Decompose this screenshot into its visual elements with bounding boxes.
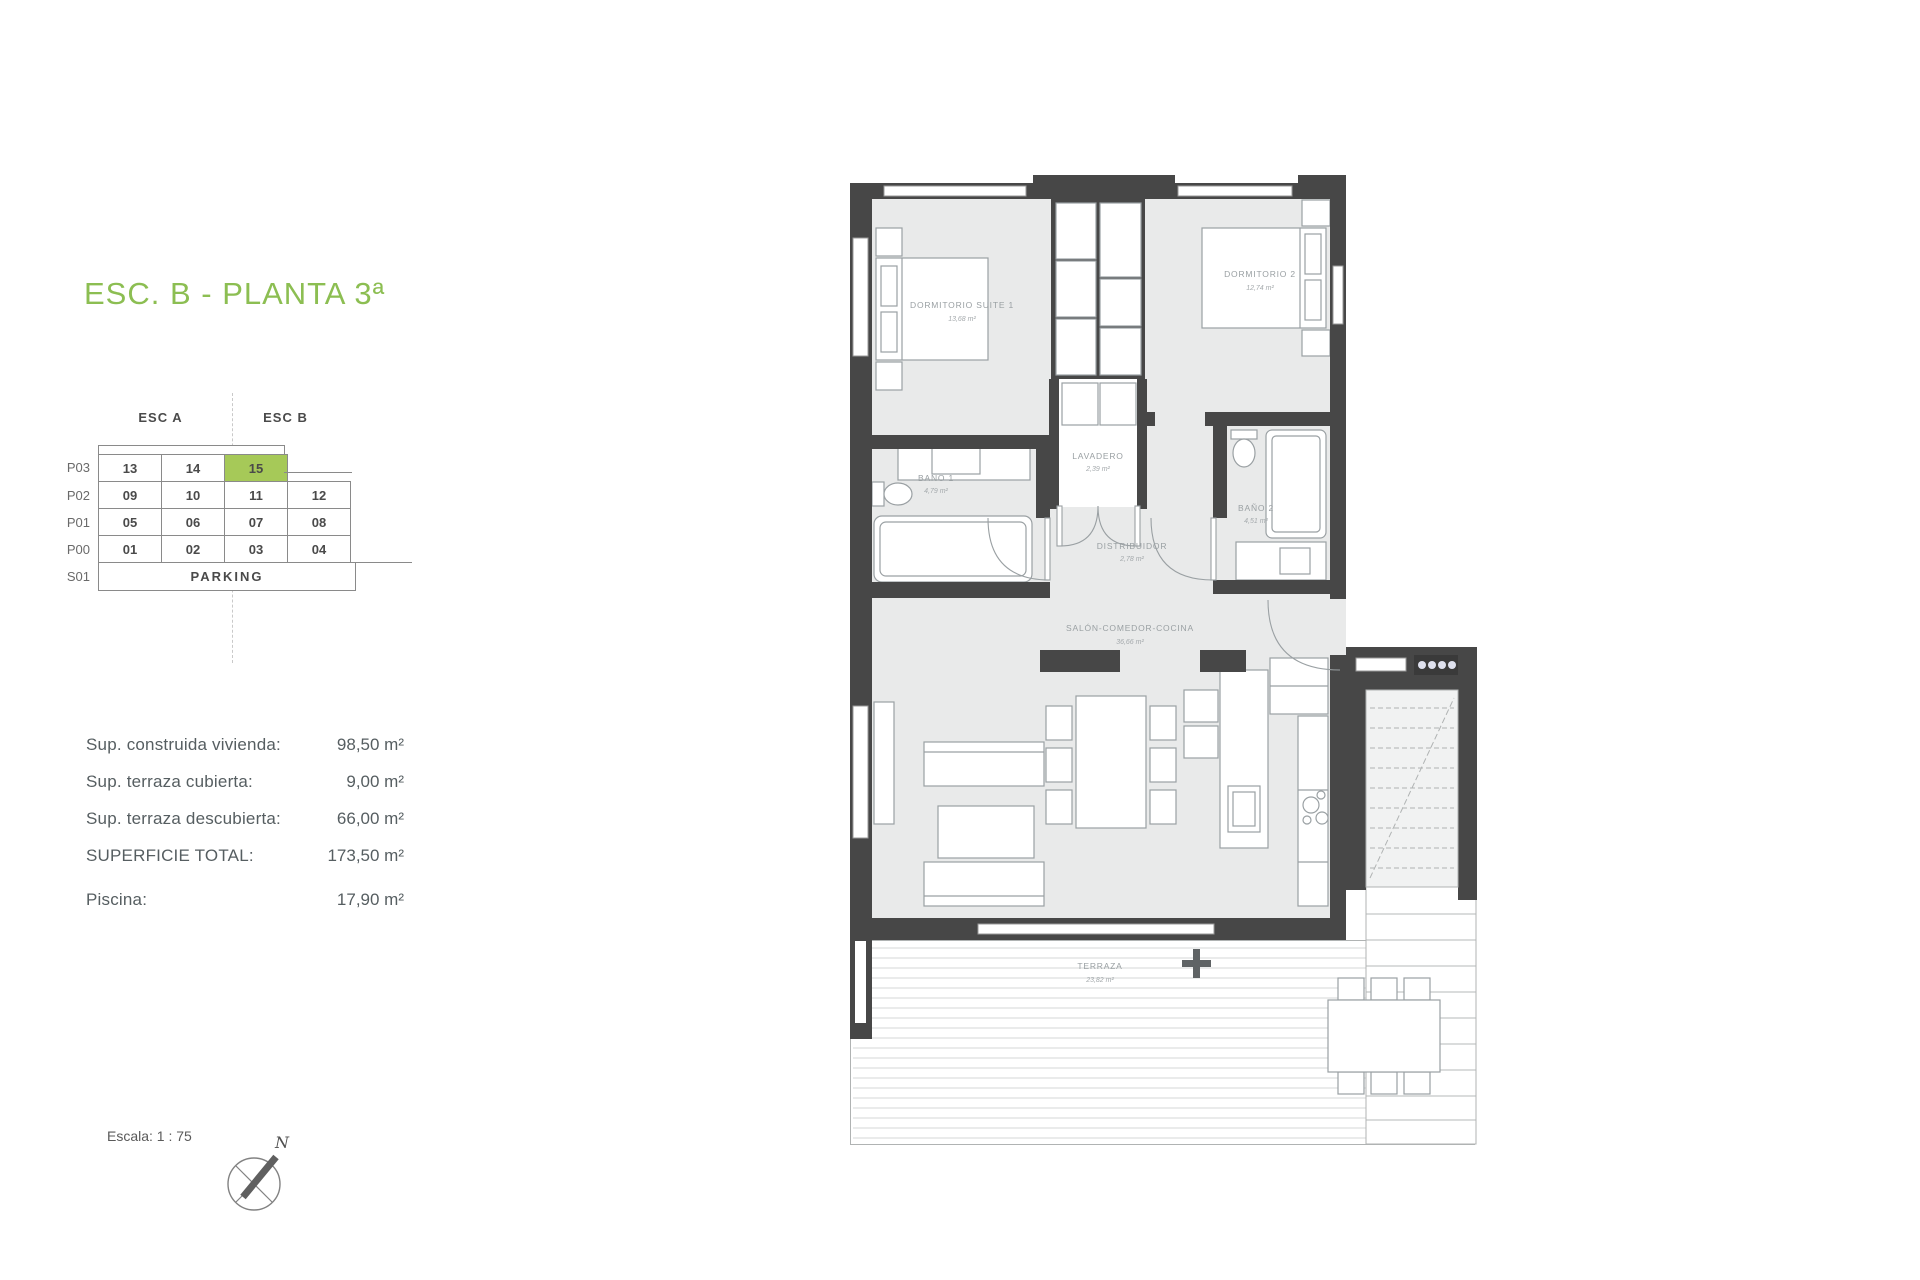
surface-area-list: Sup. construida vivienda: 98,50 m² Sup. … bbox=[86, 735, 404, 927]
area-row-piscina: Piscina: 17,90 m² bbox=[86, 890, 404, 910]
tv-sideboard-icon bbox=[874, 702, 894, 824]
floor-plan: DORMITORIO SUITE 1 13,68 m² DORMITORIO 2… bbox=[700, 150, 1480, 1160]
svg-text:4,79 m²: 4,79 m² bbox=[924, 488, 948, 495]
area-value: 17,90 m² bbox=[337, 890, 404, 910]
label-salon-comedor-cocina: SALÓN-COMEDOR-COCINA bbox=[1066, 623, 1194, 633]
svg-text:4,51 m²: 4,51 m² bbox=[1244, 518, 1268, 525]
door-leaf-laundry-right bbox=[1135, 506, 1140, 546]
unit-cell-09: 09 bbox=[98, 481, 162, 510]
sofa-bottom-icon bbox=[924, 862, 1044, 906]
area-label: Sup. construida vivienda: bbox=[86, 735, 281, 755]
unit-cell-11: 11 bbox=[224, 481, 288, 510]
grid-row-p03: 13 14 15 bbox=[98, 454, 288, 483]
wardrobe-icon bbox=[1051, 199, 1145, 379]
terrace-pillar bbox=[850, 931, 872, 1039]
window-right bbox=[1333, 266, 1343, 324]
sofa-top-icon bbox=[924, 742, 1044, 786]
area-label: Sup. terraza cubierta: bbox=[86, 772, 253, 792]
area-value: 173,50 m² bbox=[327, 846, 404, 866]
grid-header-esc-a: ESC A bbox=[98, 410, 223, 425]
grid-row-p02: 09 10 11 12 bbox=[98, 481, 351, 510]
cooktop-icon bbox=[1303, 797, 1319, 813]
toilet-1-icon bbox=[872, 482, 884, 506]
unit-cell-14: 14 bbox=[161, 454, 225, 483]
svg-text:12,74 m²: 12,74 m² bbox=[1246, 285, 1274, 292]
area-label: Sup. terraza descubierta: bbox=[86, 809, 281, 829]
area-label: SUPERFICIE TOTAL: bbox=[86, 846, 254, 866]
unit-cell-13: 13 bbox=[98, 454, 162, 483]
label-dormitorio-suite-1: DORMITORIO SUITE 1 bbox=[910, 300, 1014, 310]
unit-cell-01: 01 bbox=[98, 535, 162, 564]
grid-row-label-p00: P00 bbox=[38, 542, 90, 557]
area-row-terraza-descubierta: Sup. terraza descubierta: 66,00 m² bbox=[86, 809, 404, 829]
unit-cell-08: 08 bbox=[287, 508, 351, 537]
window-top-2 bbox=[1178, 186, 1292, 196]
stairwell-block bbox=[1346, 647, 1477, 900]
area-value: 98,50 m² bbox=[337, 735, 404, 755]
unit-cell-04: 04 bbox=[287, 535, 351, 564]
label-terraza: TERRAZA bbox=[1077, 961, 1122, 971]
grid-row-label-p02: P02 bbox=[38, 488, 90, 503]
grid-row-label-s01: S01 bbox=[38, 569, 90, 584]
area-label: Piscina: bbox=[86, 890, 147, 910]
compass-icon: N bbox=[220, 1130, 294, 1226]
window-left-2 bbox=[853, 706, 868, 838]
dining-table-icon bbox=[1046, 696, 1176, 828]
grid-row-label-p01: P01 bbox=[38, 515, 90, 530]
unit-cell-15-highlighted: 15 bbox=[224, 454, 288, 483]
svg-text:2,78 m²: 2,78 m² bbox=[1119, 556, 1144, 563]
terrace-glass-doors bbox=[978, 924, 1214, 934]
grid-row-p00: 01 02 03 04 bbox=[98, 535, 351, 564]
unit-cell-05: 05 bbox=[98, 508, 162, 537]
label-lavadero: LAVADERO bbox=[1072, 451, 1123, 461]
svg-text:13,68 m²: 13,68 m² bbox=[948, 316, 976, 323]
coffee-table-icon bbox=[938, 806, 1034, 858]
label-distribuidor: DISTRIBUIDOR bbox=[1097, 541, 1168, 551]
unit-cell-03: 03 bbox=[224, 535, 288, 564]
label-bano-2: BAÑO 2 bbox=[1238, 503, 1274, 513]
window-top-1 bbox=[884, 186, 1026, 196]
grid-step-line bbox=[284, 472, 352, 473]
unit-cell-07: 07 bbox=[224, 508, 288, 537]
area-row-construida: Sup. construida vivienda: 98,50 m² bbox=[86, 735, 404, 755]
area-row-superficie-total: SUPERFICIE TOTAL: 173,50 m² bbox=[86, 846, 404, 866]
scale-text: Escala: 1 : 75 bbox=[107, 1128, 192, 1144]
svg-text:2,39 m²: 2,39 m² bbox=[1085, 466, 1110, 473]
door-leaf-laundry-left bbox=[1057, 506, 1062, 546]
grid-row-s01: PARKING bbox=[98, 562, 356, 591]
compass-north-label: N bbox=[274, 1133, 290, 1152]
area-value: 66,00 m² bbox=[337, 809, 404, 829]
unit-cell-12: 12 bbox=[287, 481, 351, 510]
parking-cell: PARKING bbox=[98, 562, 356, 591]
unit-cell-10: 10 bbox=[161, 481, 225, 510]
grid-row-label-p03: P03 bbox=[38, 460, 90, 475]
unit-cell-06: 06 bbox=[161, 508, 225, 537]
svg-text:36,66 m²: 36,66 m² bbox=[1116, 639, 1144, 646]
window-left-1 bbox=[853, 238, 868, 356]
label-bano-1: BAÑO 1 bbox=[918, 473, 954, 483]
plan-sheet: ESC. B - PLANTA 3ª ESC A ESC B P03 13 14… bbox=[0, 0, 1920, 1280]
unit-cell-02: 02 bbox=[161, 535, 225, 564]
area-row-terraza-cubierta: Sup. terraza cubierta: 9,00 m² bbox=[86, 772, 404, 792]
door-leaf-bath2 bbox=[1211, 518, 1216, 580]
grid-header-esc-b: ESC B bbox=[223, 410, 348, 425]
laundry-machines-icon bbox=[1059, 379, 1137, 507]
stair-landing-window bbox=[1356, 658, 1406, 671]
area-value: 9,00 m² bbox=[346, 772, 404, 792]
door-leaf-bath1 bbox=[1045, 518, 1050, 580]
grid-row-p01: 05 06 07 08 bbox=[98, 508, 351, 537]
grid-ground-line bbox=[354, 562, 412, 563]
toilet-2-icon bbox=[1231, 430, 1257, 439]
page-title: ESC. B - PLANTA 3ª bbox=[84, 276, 385, 312]
outdoor-dining-table bbox=[1328, 978, 1440, 1094]
svg-text:23,82 m²: 23,82 m² bbox=[1085, 977, 1114, 984]
label-dormitorio-2: DORMITORIO 2 bbox=[1224, 269, 1296, 279]
